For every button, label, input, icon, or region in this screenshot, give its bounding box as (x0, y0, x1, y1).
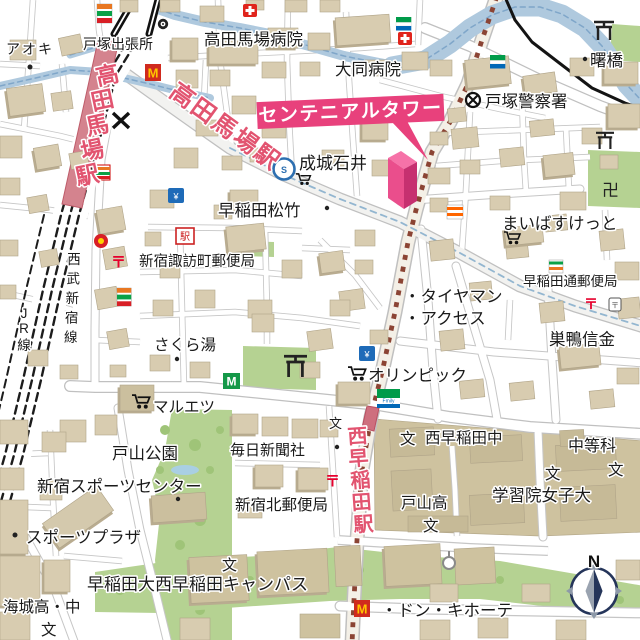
svg-text:西: 西 (347, 425, 368, 448)
svg-text:戸塚警察署: 戸塚警察署 (485, 92, 568, 111)
svg-text:戸塚出張所: 戸塚出張所 (83, 36, 153, 52)
svg-text:海城高・中: 海城高・中 (3, 598, 81, 616)
svg-text:線: 線 (17, 338, 31, 353)
svg-text:・タイヤマン: ・タイヤマン (404, 287, 503, 306)
svg-text:S: S (281, 165, 287, 175)
svg-text:早稲田大西早稲田キャンパス: 早稲田大西早稲田キャンパス (87, 575, 308, 594)
svg-text:高田馬場病院: 高田馬場病院 (204, 30, 303, 49)
svg-text:稲: 稲 (350, 468, 372, 492)
svg-text:早稲田通郵便局: 早稲田通郵便局 (523, 274, 618, 289)
svg-text:早稲田松竹: 早稲田松竹 (218, 201, 301, 220)
svg-text:Fmily: Fmily (383, 399, 395, 405)
svg-text:宿: 宿 (65, 310, 79, 326)
svg-text:成城石井: 成城石井 (299, 154, 367, 173)
svg-text:まいばすけっと: まいばすけっと (502, 214, 618, 233)
svg-text:スポーツプラザ: スポーツプラザ (26, 528, 141, 547)
svg-text:田: 田 (351, 491, 372, 514)
svg-text:¥: ¥ (363, 350, 370, 360)
svg-text:早: 早 (348, 447, 369, 470)
svg-text:新宿スポーツセンター: 新宿スポーツセンター (37, 477, 202, 496)
svg-text:毎日新聞社: 毎日新聞社 (230, 442, 305, 459)
svg-text:文: 文 (41, 621, 57, 639)
svg-text:新: 新 (66, 291, 80, 306)
svg-text:文: 文 (222, 557, 237, 574)
svg-text:戸山高: 戸山高 (401, 494, 448, 512)
svg-text:大同病院: 大同病院 (335, 60, 401, 79)
svg-text:〒: 〒 (611, 301, 619, 310)
svg-text:西早稲田中: 西早稲田中 (425, 429, 503, 447)
svg-text:西: 西 (67, 252, 81, 267)
svg-text:文: 文 (423, 517, 439, 535)
svg-text:J: J (21, 306, 28, 321)
svg-text:線: 線 (64, 330, 78, 345)
svg-text:巣鴨信金: 巣鴨信金 (549, 330, 616, 349)
svg-text:マルエツ: マルエツ (153, 399, 215, 416)
svg-text:新宿諏訪町郵便局: 新宿諏訪町郵便局 (139, 253, 255, 270)
svg-text:中等科: 中等科 (568, 437, 616, 455)
svg-text:学習院女子大: 学習院女子大 (492, 486, 591, 505)
svg-text:M: M (357, 602, 368, 617)
svg-text:武: 武 (66, 272, 80, 287)
svg-text:駅: 駅 (352, 512, 375, 536)
svg-text:〒: 〒 (584, 296, 598, 312)
svg-text:曙橋: 曙橋 (590, 51, 624, 70)
svg-text:文: 文 (400, 430, 416, 448)
svg-text:・ドン・キホーテ: ・ドン・キホーテ (381, 602, 513, 620)
svg-text:アオキ: アオキ (6, 41, 54, 57)
svg-text:駅: 駅 (180, 231, 190, 243)
svg-text:〒: 〒 (325, 473, 340, 490)
svg-text:文: 文 (329, 416, 342, 431)
svg-text:R: R (19, 321, 29, 336)
svg-text:・アクセス: ・アクセス (404, 309, 486, 328)
svg-text:新宿北郵便局: 新宿北郵便局 (235, 496, 328, 514)
svg-text:M: M (227, 375, 237, 389)
svg-text:文: 文 (608, 461, 624, 479)
svg-text:〒: 〒 (111, 254, 126, 271)
svg-text:さくら湯: さくら湯 (154, 336, 216, 354)
svg-text:文: 文 (545, 465, 561, 483)
svg-text:戸山公園: 戸山公園 (112, 444, 178, 463)
svg-text:¥: ¥ (172, 192, 179, 202)
svg-text:オリンピック: オリンピック (368, 366, 467, 385)
svg-text:卍: 卍 (602, 181, 619, 200)
svg-text:M: M (148, 66, 159, 81)
svg-text:N: N (588, 552, 600, 571)
